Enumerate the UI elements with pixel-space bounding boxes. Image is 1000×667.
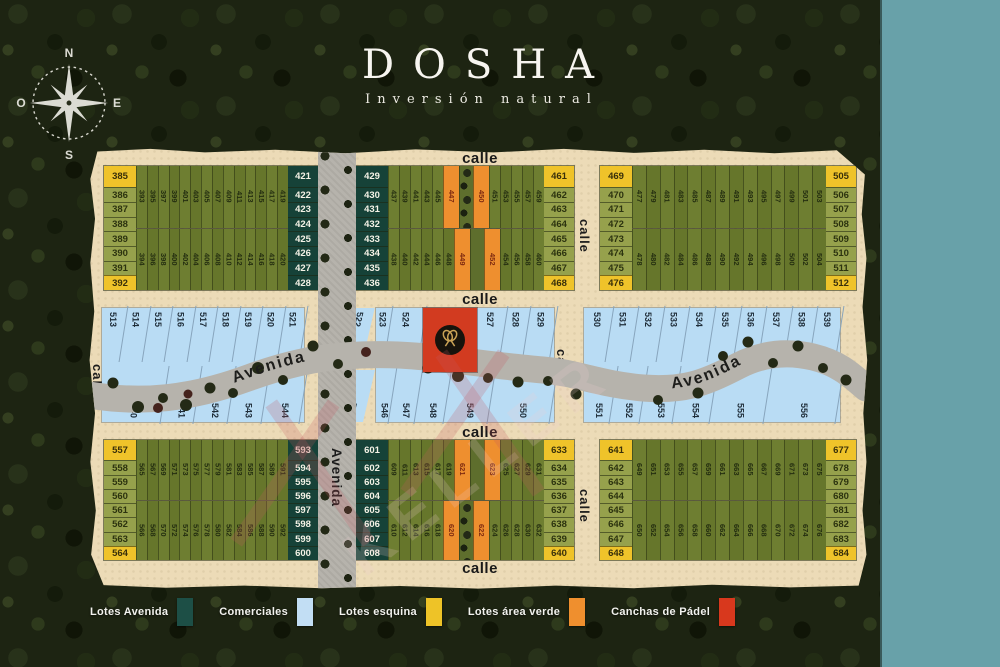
lot-strip: 397	[158, 166, 169, 228]
lot-strip: 447	[443, 166, 459, 228]
lot-strip: 656	[674, 501, 688, 561]
lot-cell: 392	[104, 275, 136, 290]
lot-strip: 437	[388, 166, 399, 228]
lot-strip: 412	[234, 229, 245, 291]
lot-strip: 495	[757, 166, 771, 228]
lot-strip: 502	[798, 229, 812, 291]
lot-cell: 509	[826, 231, 856, 246]
lot-strip: 611	[399, 440, 410, 500]
block-bottom-left: 557558559560561562563564 565567569571573…	[104, 440, 318, 560]
lot-strip: 626	[500, 501, 511, 561]
lot-cell: 599	[288, 532, 318, 546]
lot-cell: 470	[600, 187, 632, 202]
lot-strip: 458	[522, 229, 533, 291]
lot-strip: 624	[489, 501, 500, 561]
lot-strip: 481	[660, 166, 674, 228]
lot-cell: 638	[544, 517, 574, 531]
lot-strip: 492	[729, 229, 743, 291]
lot-strip: 621	[454, 440, 470, 500]
lot-strip: 612	[399, 501, 410, 561]
lot-cell: 510	[826, 246, 856, 261]
lot-strip: 664	[729, 501, 743, 561]
lot-cell: 633	[544, 440, 574, 460]
lot-strip: 581	[223, 440, 234, 500]
lot-strip: 407	[212, 166, 223, 228]
lot-strip: 415	[255, 166, 266, 228]
lot-cell: 601	[356, 440, 388, 460]
lot-strip	[470, 229, 484, 291]
padel-rackets-icon	[435, 325, 465, 355]
lot-strip: 444	[421, 229, 432, 291]
lot-strip: 590	[266, 501, 277, 561]
lot-strip: 619	[443, 440, 454, 500]
lot-cell: 471	[600, 202, 632, 217]
lot-cell: 677	[826, 440, 856, 460]
right-column: 593594595596597598599600	[288, 440, 318, 560]
lot-strip: 488	[701, 229, 715, 291]
lot-strip	[459, 501, 473, 561]
lot-cell: 561	[104, 503, 136, 517]
lot-cell: 602	[356, 460, 388, 474]
lot-cell: 642	[600, 460, 632, 474]
lot-cell: 474	[600, 246, 632, 261]
site-plan-image: N S E O DOSHA Inversión natural calle ca…	[0, 0, 1000, 667]
lot-strip: 616	[421, 501, 432, 561]
lot-cell: 424	[288, 217, 318, 232]
lot-strip: 675	[812, 440, 826, 500]
block-top-middle: 429430431432433434435436 437439441443445…	[356, 166, 574, 290]
lot-strip: 482	[660, 229, 674, 291]
lot-cell: 596	[288, 489, 318, 503]
lot-cell: 564	[104, 546, 136, 560]
lot-strip: 404	[190, 229, 201, 291]
lot-strip: 610	[388, 501, 399, 561]
lot-strip: 483	[674, 166, 688, 228]
lot-strip: 630	[522, 501, 533, 561]
lot-strip: 615	[421, 440, 432, 500]
lot-strip: 451	[489, 166, 500, 228]
teal-side-panel	[880, 0, 1000, 667]
lot-cell: 594	[288, 460, 318, 474]
lot-strip: 450	[473, 166, 489, 228]
lot-strip: 405	[201, 166, 212, 228]
lot-strip: 400	[169, 229, 180, 291]
lot-strip: 668	[757, 501, 771, 561]
lot-strip: 566	[136, 501, 147, 561]
legend-swatch	[569, 598, 585, 626]
lot-strip: 622	[473, 501, 489, 561]
lot-strip: 571	[169, 440, 180, 500]
lot-cell: 465	[544, 231, 574, 246]
lot-strip: 568	[147, 501, 158, 561]
lot-cell: 647	[600, 532, 632, 546]
lot-cell: 435	[356, 261, 388, 276]
lot-strip: 669	[771, 440, 785, 500]
lot-cell: 682	[826, 517, 856, 531]
lot-cell: 639	[544, 532, 574, 546]
lot-cell: 433	[356, 231, 388, 246]
lot-cell: 606	[356, 517, 388, 531]
lot-cell: 641	[600, 440, 632, 460]
lot-strip: 572	[169, 501, 180, 561]
legend-label: Comerciales	[219, 606, 288, 618]
lot-cell: 640	[544, 546, 574, 560]
lot-strip: 623	[484, 440, 500, 500]
lot-cell: 426	[288, 246, 318, 261]
lot-strip: 406	[201, 229, 212, 291]
lot-cell: 431	[356, 202, 388, 217]
master-plan-map: calle calle calle calle calle calle call…	[88, 148, 868, 590]
street-label-calle-mid1: calle	[420, 291, 540, 308]
lot-cell: 432	[356, 217, 388, 232]
street-label-calle-bottom: calle	[420, 560, 540, 577]
legend-item: Lotes esquina	[339, 598, 442, 626]
lot-cell: 604	[356, 489, 388, 503]
strip-lots: 609611613615617619621623625627629631 610…	[388, 440, 544, 560]
legend-swatch	[426, 598, 442, 626]
lot-cell: 603	[356, 475, 388, 489]
lot-cell: 425	[288, 231, 318, 246]
lot-cell: 506	[826, 187, 856, 202]
lot-cell: 508	[826, 217, 856, 232]
lot-cell: 390	[104, 246, 136, 261]
lot-strip: 578	[201, 501, 212, 561]
lot-cell: 648	[600, 546, 632, 560]
block-top-right: 469470471472473474475476 477479481483485…	[600, 166, 856, 290]
lot-strip: 618	[432, 501, 443, 561]
lot-cell: 469	[600, 166, 632, 187]
lot-strip: 671	[784, 440, 798, 500]
lot-strip: 396	[147, 229, 158, 291]
street-label-calle-mid2: calle	[420, 424, 540, 441]
lot-cell: 635	[544, 475, 574, 489]
lot-strip: 496	[757, 229, 771, 291]
lot-cell: 428	[288, 275, 318, 290]
lot-strip: 570	[158, 501, 169, 561]
lot-strip: 672	[784, 501, 798, 561]
lot-strip: 665	[743, 440, 757, 500]
lot-cell: 645	[600, 503, 632, 517]
lot-strip: 393	[136, 166, 147, 228]
block-bottom-right: 641642643644645646647648 649651653655657…	[600, 440, 856, 560]
lot-strip: 457	[522, 166, 533, 228]
lot-strip: 574	[179, 501, 190, 561]
lot-strip: 658	[687, 501, 701, 561]
lot-strip: 653	[660, 440, 674, 500]
compass-south-label: S	[65, 148, 73, 162]
lot-cell: 388	[104, 217, 136, 232]
lot-strip: 416	[255, 229, 266, 291]
left-column: 429430431432433434435436	[356, 166, 388, 290]
lot-cell: 461	[544, 166, 574, 187]
block-top-left: 385386387388389390391392 393395397399401…	[104, 166, 318, 290]
padel-court	[423, 308, 477, 372]
lot-strip: 609	[388, 440, 399, 500]
lot-strip: 443	[421, 166, 432, 228]
lot-cell: 467	[544, 261, 574, 276]
legend-label: Lotes Avenida	[90, 606, 168, 618]
lot-strip: 411	[234, 166, 245, 228]
lot-strip: 409	[223, 166, 234, 228]
lot-strip: 627	[511, 440, 522, 500]
lot-cell: 436	[356, 275, 388, 290]
lot-cell: 557	[104, 440, 136, 460]
lot-strip: 625	[500, 440, 511, 500]
lot-cell: 636	[544, 489, 574, 503]
lot-strip: 413	[245, 166, 256, 228]
lot-strip: 477	[632, 166, 646, 228]
lot-cell: 422	[288, 187, 318, 202]
lot-cell: 386	[104, 187, 136, 202]
strip-lots: 6496516536556576596616636656676696716736…	[632, 440, 826, 560]
avenue-road-horizontal: Avenida Avenida	[98, 308, 858, 422]
lot-cell: 391	[104, 261, 136, 276]
lot-strip: 667	[757, 440, 771, 500]
lot-strip: 579	[212, 440, 223, 500]
left-column: 641642643644645646647648	[600, 440, 632, 560]
lot-strip: 439	[399, 166, 410, 228]
lot-strip: 580	[212, 501, 223, 561]
street-label-calle-vertical-top: calle	[577, 196, 592, 276]
lot-cell: 681	[826, 503, 856, 517]
lot-cell: 463	[544, 202, 574, 217]
lot-strip: 651	[646, 440, 660, 500]
lot-strip: 503	[812, 166, 826, 228]
legend: Lotes Avenida Comerciales Lotes esquina …	[90, 598, 735, 626]
right-column: 633634635636637638639640	[544, 440, 574, 560]
street-label-calle-vertical-bottom: calle	[577, 466, 592, 546]
lot-cell: 634	[544, 460, 574, 474]
legend-swatch	[719, 598, 735, 626]
lot-strip: 567	[147, 440, 158, 500]
lot-strip: 569	[158, 440, 169, 500]
lot-strip: 479	[646, 166, 660, 228]
lot-strip: 486	[687, 229, 701, 291]
lot-strip: 455	[511, 166, 522, 228]
lot-cell: 421	[288, 166, 318, 187]
lot-cell: 466	[544, 246, 574, 261]
lot-strip: 592	[277, 501, 288, 561]
lot-strip: 629	[522, 440, 533, 500]
lot-cell: 559	[104, 475, 136, 489]
lot-strip: 398	[158, 229, 169, 291]
legend-label: Lotes área verde	[468, 606, 560, 618]
lot-cell: 389	[104, 231, 136, 246]
lot-strip: 583	[234, 440, 245, 500]
lot-strip: 454	[500, 229, 511, 291]
lot-strip: 487	[701, 166, 715, 228]
lot-strip: 649	[632, 440, 646, 500]
lot-cell: 608	[356, 546, 388, 560]
lot-strip: 655	[674, 440, 688, 500]
right-column: 677678679680681682683684	[826, 440, 856, 560]
street-label-calle-top: calle	[420, 150, 540, 167]
lot-cell: 429	[356, 166, 388, 187]
lot-strip: 456	[511, 229, 522, 291]
left-column: 469470471472473474475476	[600, 166, 632, 290]
lot-strip: 401	[179, 166, 190, 228]
lot-strip: 489	[715, 166, 729, 228]
lot-strip: 499	[784, 166, 798, 228]
left-column: 385386387388389390391392	[104, 166, 136, 290]
lot-cell: 423	[288, 202, 318, 217]
left-column: 557558559560561562563564	[104, 440, 136, 560]
lot-strip: 588	[255, 501, 266, 561]
lot-strip: 632	[533, 501, 544, 561]
lot-strip: 504	[812, 229, 826, 291]
strip-lots: 3933953973994014034054074094114134154174…	[136, 166, 288, 290]
lot-strip	[459, 166, 473, 228]
lot-strip: 500	[784, 229, 798, 291]
logo-title: DOSHA	[88, 42, 868, 88]
right-column: 461462463464465466467468	[544, 166, 574, 290]
lot-cell: 593	[288, 440, 318, 460]
lot-cell: 512	[826, 275, 856, 290]
lot-cell: 473	[600, 231, 632, 246]
left-column: 601602603604605606607608	[356, 440, 388, 560]
lot-strip: 442	[410, 229, 421, 291]
legend-label: Lotes esquina	[339, 606, 417, 618]
lot-cell: 563	[104, 532, 136, 546]
lot-cell: 678	[826, 460, 856, 474]
lot-strip: 459	[533, 166, 544, 228]
block-bottom-middle: 601602603604605606607608 609611613615617…	[356, 440, 574, 560]
lot-strip: 478	[632, 229, 646, 291]
lot-strip: 501	[798, 166, 812, 228]
lot-cell: 562	[104, 517, 136, 531]
lot-strip: 448	[443, 229, 454, 291]
strip-lots: 4774794814834854874894914934954974995015…	[632, 166, 826, 290]
lot-strip: 652	[646, 501, 660, 561]
lot-cell: 560	[104, 489, 136, 503]
lot-cell: 646	[600, 517, 632, 531]
lot-strip: 577	[201, 440, 212, 500]
lot-strip: 403	[190, 166, 201, 228]
lot-strip: 674	[798, 501, 812, 561]
strip-lots: 5655675695715735755775795815835855875895…	[136, 440, 288, 560]
lot-strip: 617	[432, 440, 443, 500]
lot-cell: 644	[600, 489, 632, 503]
lot-strip: 666	[743, 501, 757, 561]
lot-strip: 497	[771, 166, 785, 228]
legend-item: Lotes área verde	[468, 598, 585, 626]
lot-cell: 605	[356, 503, 388, 517]
legend-item: Lotes Avenida	[90, 598, 193, 626]
lot-strip: 485	[687, 166, 701, 228]
lot-strip: 452	[484, 229, 500, 291]
lot-cell: 505	[826, 166, 856, 187]
lot-strip: 589	[266, 440, 277, 500]
lot-strip: 493	[743, 166, 757, 228]
lot-strip: 498	[771, 229, 785, 291]
lot-strip: 417	[266, 166, 277, 228]
lot-strip: 585	[245, 440, 256, 500]
lot-strip: 565	[136, 440, 147, 500]
lot-strip: 586	[245, 501, 256, 561]
compass-west-label: O	[16, 96, 25, 110]
right-column: 421422423424425426427428	[288, 166, 318, 290]
lot-cell: 427	[288, 261, 318, 276]
lot-strip: 395	[147, 166, 158, 228]
lot-strip: 620	[443, 501, 459, 561]
lot-cell: 683	[826, 532, 856, 546]
lot-strip: 662	[715, 501, 729, 561]
lot-cell: 679	[826, 475, 856, 489]
lot-strip: 654	[660, 501, 674, 561]
lot-cell: 607	[356, 532, 388, 546]
lot-strip: 441	[410, 166, 421, 228]
lot-strip: 394	[136, 229, 147, 291]
legend-swatch	[177, 598, 193, 626]
lot-cell: 434	[356, 246, 388, 261]
lot-cell: 472	[600, 217, 632, 232]
compass-north-label: N	[65, 46, 74, 60]
lot-cell: 475	[600, 261, 632, 276]
lot-strip: 480	[646, 229, 660, 291]
lot-strip: 445	[432, 166, 443, 228]
legend-item: Canchas de Pádel	[611, 598, 735, 626]
lot-strip: 573	[179, 440, 190, 500]
lot-cell: 684	[826, 546, 856, 560]
lot-cell: 558	[104, 460, 136, 474]
lot-cell: 507	[826, 202, 856, 217]
lot-strip: 494	[743, 229, 757, 291]
lot-strip: 582	[223, 501, 234, 561]
lot-strip: 661	[715, 440, 729, 500]
lot-cell: 643	[600, 475, 632, 489]
legend-item: Comerciales	[219, 598, 313, 626]
lot-strip: 575	[190, 440, 201, 500]
lot-strip: 576	[190, 501, 201, 561]
lot-strip: 663	[729, 440, 743, 500]
lot-strip: 660	[701, 501, 715, 561]
lot-cell: 468	[544, 275, 574, 290]
lot-strip	[470, 440, 484, 500]
lot-cell: 385	[104, 166, 136, 187]
lot-strip: 650	[632, 501, 646, 561]
lot-strip: 414	[245, 229, 256, 291]
lot-strip: 628	[511, 501, 522, 561]
lot-strip: 446	[432, 229, 443, 291]
logo: DOSHA Inversión natural	[88, 42, 868, 107]
lot-cell: 600	[288, 546, 318, 560]
lot-strip: 410	[223, 229, 234, 291]
strip-lots: 437439441443445447450451453455457459 438…	[388, 166, 544, 290]
lot-cell: 430	[356, 187, 388, 202]
lot-cell: 637	[544, 503, 574, 517]
lot-strip: 420	[277, 229, 288, 291]
lot-strip: 673	[798, 440, 812, 500]
lot-strip: 419	[277, 166, 288, 228]
lot-cell: 387	[104, 202, 136, 217]
lot-strip: 614	[410, 501, 421, 561]
lot-strip: 402	[179, 229, 190, 291]
lot-strip: 631	[533, 440, 544, 500]
lot-strip: 484	[674, 229, 688, 291]
lot-cell: 462	[544, 187, 574, 202]
logo-subtitle: Inversión natural	[88, 92, 868, 107]
lot-strip: 438	[388, 229, 399, 291]
lot-strip: 408	[212, 229, 223, 291]
street-label-avenida-vertical: Avenida	[329, 448, 344, 507]
lot-strip: 676	[812, 501, 826, 561]
lot-cell: 476	[600, 275, 632, 290]
lot-strip: 399	[169, 166, 180, 228]
lot-strip: 491	[729, 166, 743, 228]
legend-swatch	[297, 598, 313, 626]
lot-strip: 449	[454, 229, 470, 291]
lot-cell: 597	[288, 503, 318, 517]
